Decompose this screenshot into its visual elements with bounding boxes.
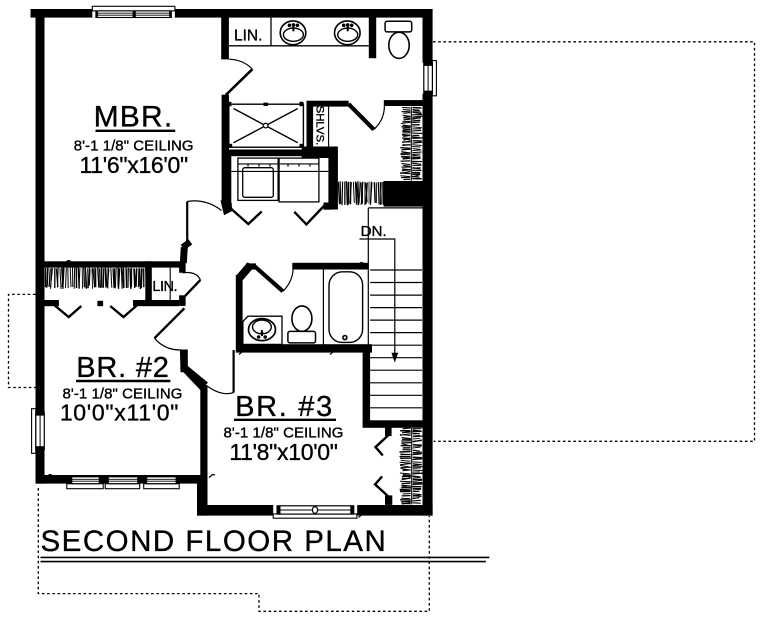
svg-text:SHLVS.: SHLVS. — [314, 106, 326, 146]
svg-text:LIN.: LIN. — [152, 279, 177, 295]
svg-text:BR. #3: BR. #3 — [235, 391, 334, 423]
svg-text:BR. #2: BR. #2 — [76, 352, 169, 384]
svg-text:LIN.: LIN. — [234, 28, 262, 45]
svg-text:DN.: DN. — [361, 223, 387, 240]
svg-text:SECOND FLOOR PLAN: SECOND FLOOR PLAN — [41, 525, 388, 558]
svg-text:11'8"x10'0": 11'8"x10'0" — [229, 439, 337, 465]
svg-text:11'6"x16'0": 11'6"x16'0" — [80, 152, 188, 178]
svg-text:MBR.: MBR. — [94, 101, 174, 134]
svg-text:10'0"x11'0": 10'0"x11'0" — [60, 399, 179, 425]
